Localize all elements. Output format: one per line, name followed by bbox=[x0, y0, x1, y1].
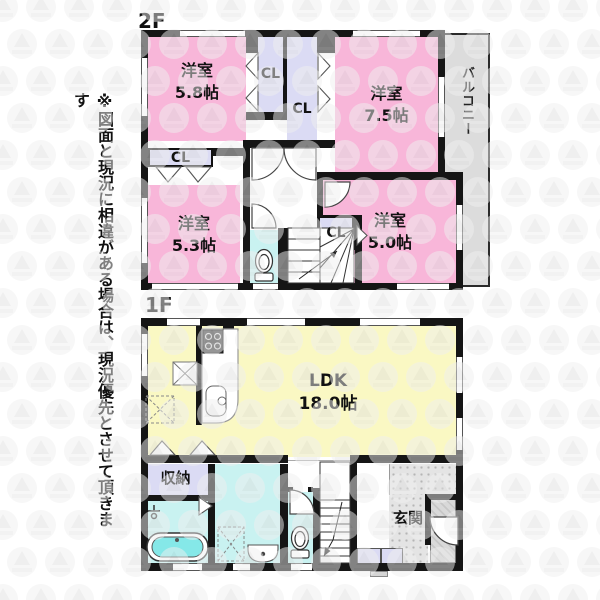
watermark-logo bbox=[178, 584, 208, 600]
watermark-logo-glyph bbox=[470, 477, 486, 491]
watermark-logo-text bbox=[88, 50, 108, 54]
watermark-logo bbox=[216, 288, 246, 318]
watermark-logo-glyph bbox=[90, 33, 106, 47]
watermark-logo bbox=[178, 0, 208, 22]
watermark-logo-glyph bbox=[508, 551, 524, 565]
watermark-logo-text bbox=[31, 457, 51, 461]
watermark-logo bbox=[292, 0, 322, 22]
watermark-logo-glyph bbox=[546, 551, 562, 565]
watermark-logo-glyph bbox=[33, 144, 49, 158]
watermark-logo bbox=[26, 362, 56, 392]
watermark-logo bbox=[64, 288, 94, 318]
watermark-logo-text bbox=[506, 346, 526, 350]
watermark-logo-glyph bbox=[470, 329, 486, 343]
watermark-logo-text bbox=[12, 272, 32, 276]
watermark-logo bbox=[330, 0, 360, 22]
watermark-logo bbox=[444, 288, 474, 318]
watermark-logo bbox=[482, 0, 512, 22]
watermark-logo-glyph bbox=[489, 70, 505, 84]
watermark-logo bbox=[577, 103, 600, 133]
watermark-logo bbox=[539, 29, 569, 59]
watermark-logo-glyph bbox=[546, 255, 562, 269]
watermark-logo bbox=[45, 29, 75, 59]
watermark-logo-glyph bbox=[546, 33, 562, 47]
watermark-logo bbox=[558, 436, 588, 466]
watermark-logo-text bbox=[0, 309, 13, 313]
wall bbox=[313, 488, 320, 563]
room-size: 5.0帖 bbox=[368, 233, 412, 252]
watermark-logo-text bbox=[297, 309, 317, 313]
watermark-logo bbox=[7, 399, 37, 429]
watermark-logo-text bbox=[12, 568, 32, 572]
watermark-logo bbox=[254, 288, 284, 318]
watermark-logo bbox=[64, 0, 94, 22]
bedroom-5-8-label: 洋室 5.8帖 bbox=[148, 60, 246, 103]
watermark-logo bbox=[45, 251, 75, 281]
watermark-logo-glyph bbox=[33, 440, 49, 454]
room-name: 洋室 bbox=[374, 211, 406, 230]
watermark-logo-glyph bbox=[489, 514, 505, 528]
watermark-logo bbox=[596, 66, 600, 96]
watermark-logo bbox=[577, 547, 600, 577]
watermark-logo-glyph bbox=[337, 588, 353, 600]
window bbox=[167, 318, 200, 326]
watermark-logo bbox=[539, 473, 569, 503]
watermark-logo bbox=[558, 288, 588, 318]
watermark-logo-glyph bbox=[527, 588, 543, 600]
window bbox=[456, 205, 463, 250]
watermark-logo-glyph bbox=[52, 107, 68, 121]
window bbox=[233, 563, 250, 571]
watermark-logo-text bbox=[50, 346, 70, 350]
watermark-logo-text bbox=[506, 494, 526, 498]
watermark-logo-glyph bbox=[71, 588, 87, 600]
watermark-logo-text bbox=[31, 235, 51, 239]
watermark-logo-glyph bbox=[451, 0, 467, 10]
watermark-logo-glyph bbox=[508, 477, 524, 491]
watermark-logo bbox=[558, 140, 588, 170]
watermark-logo bbox=[7, 103, 37, 133]
watermark-logo-glyph bbox=[451, 292, 467, 306]
watermark-logo-text bbox=[544, 420, 564, 424]
watermark-logo-text bbox=[487, 531, 507, 535]
watermark-logo bbox=[539, 251, 569, 281]
watermark-logo-glyph bbox=[261, 292, 277, 306]
wall bbox=[213, 148, 243, 156]
watermark-logo-glyph bbox=[14, 477, 30, 491]
watermark-logo bbox=[444, 584, 474, 600]
watermark-logo bbox=[577, 473, 600, 503]
watermark-logo-glyph bbox=[489, 588, 505, 600]
watermark-logo-text bbox=[525, 235, 545, 239]
watermark-logo-glyph bbox=[584, 329, 600, 343]
watermark-logo-text bbox=[582, 272, 600, 276]
watermark-logo-text bbox=[544, 568, 564, 572]
watermark-logo-text bbox=[506, 198, 526, 202]
bedroom-5-3-label: 洋室 5.3帖 bbox=[148, 213, 240, 256]
watermark-logo-text bbox=[50, 420, 70, 424]
watermark-logo-text bbox=[506, 50, 526, 54]
watermark-logo bbox=[7, 251, 37, 281]
closet-right-label: CL bbox=[285, 102, 319, 116]
watermark-logo-text bbox=[0, 383, 13, 387]
watermark-logo-text bbox=[544, 494, 564, 498]
watermark-logo bbox=[577, 251, 600, 281]
watermark-logo bbox=[64, 510, 94, 540]
watermark-logo bbox=[0, 584, 18, 600]
entrance-porch bbox=[430, 497, 456, 563]
watermark-logo-glyph bbox=[565, 70, 581, 84]
closet-5-0-label: CL bbox=[317, 226, 355, 240]
watermark-logo-text bbox=[506, 420, 526, 424]
watermark-logo-glyph bbox=[508, 33, 524, 47]
watermark-logo bbox=[520, 0, 550, 22]
watermark-logo-text bbox=[0, 457, 13, 461]
watermark-logo-text bbox=[582, 494, 600, 498]
watermark-logo-text bbox=[31, 383, 51, 387]
toilet-2f-room bbox=[250, 230, 278, 283]
watermark-logo-text bbox=[525, 87, 545, 91]
watermark-logo bbox=[178, 288, 208, 318]
watermark-logo bbox=[520, 214, 550, 244]
watermark-logo bbox=[520, 584, 550, 600]
watermark-logo-text bbox=[582, 568, 600, 572]
watermark-logo-glyph bbox=[0, 70, 11, 84]
watermark-logo-glyph bbox=[223, 292, 239, 306]
wall bbox=[278, 228, 288, 285]
watermark-logo-text bbox=[487, 457, 507, 461]
window bbox=[173, 563, 202, 571]
watermark-logo-text bbox=[335, 309, 355, 313]
watermark-logo bbox=[45, 547, 75, 577]
wall bbox=[223, 326, 234, 352]
watermark-logo bbox=[501, 325, 531, 355]
watermark-logo-text bbox=[31, 13, 51, 17]
window bbox=[456, 357, 463, 393]
watermark-logo-text bbox=[563, 235, 583, 239]
watermark-logo-glyph bbox=[52, 33, 68, 47]
wall bbox=[317, 172, 463, 180]
watermark-logo-glyph bbox=[527, 440, 543, 454]
kitchen-wall bbox=[196, 326, 202, 425]
watermark-logo-glyph bbox=[527, 218, 543, 232]
watermark-logo bbox=[596, 584, 600, 600]
watermark-logo-glyph bbox=[527, 366, 543, 380]
entrance-step bbox=[370, 571, 388, 577]
watermark-logo-text bbox=[544, 272, 564, 276]
watermark-logo-glyph bbox=[584, 403, 600, 417]
room-size: 5.3帖 bbox=[172, 236, 216, 255]
shoe-cabinet bbox=[381, 548, 403, 564]
bathroom bbox=[143, 501, 212, 563]
watermark-logo-text bbox=[525, 309, 545, 313]
watermark-logo-text bbox=[50, 50, 70, 54]
watermark-logo bbox=[558, 214, 588, 244]
watermark-logo-glyph bbox=[185, 292, 201, 306]
floor-2f-label: 2F bbox=[138, 9, 166, 33]
watermark-logo-text bbox=[259, 13, 279, 17]
watermark-logo-text bbox=[12, 494, 32, 498]
watermark-logo-glyph bbox=[508, 403, 524, 417]
watermark-logo bbox=[0, 66, 18, 96]
watermark-logo bbox=[0, 436, 18, 466]
watermark-logo-glyph bbox=[413, 588, 429, 600]
watermark-logo-glyph bbox=[71, 292, 87, 306]
watermark-logo-glyph bbox=[147, 588, 163, 600]
watermark-logo-text bbox=[582, 420, 600, 424]
watermark-logo-text bbox=[411, 309, 431, 313]
watermark-logo-glyph bbox=[14, 33, 30, 47]
watermark-logo bbox=[102, 0, 132, 22]
watermark-logo bbox=[26, 288, 56, 318]
watermark-logo-text bbox=[12, 50, 32, 54]
watermark-logo-glyph bbox=[508, 107, 524, 121]
watermark-logo bbox=[26, 0, 56, 22]
window bbox=[141, 58, 148, 116]
watermark-logo-text bbox=[525, 161, 545, 165]
watermark-logo-text bbox=[582, 198, 600, 202]
watermark-logo-text bbox=[468, 494, 488, 498]
watermark-logo bbox=[520, 66, 550, 96]
watermark-logo-glyph bbox=[584, 107, 600, 121]
disclaimer-text: ※図面と現況に相違がある場合は、現況優先とさせて頂きます bbox=[92, 92, 116, 532]
watermark-logo-glyph bbox=[584, 181, 600, 195]
watermark-logo-text bbox=[50, 568, 70, 572]
watermark-logo-text bbox=[582, 124, 600, 128]
watermark-logo-glyph bbox=[0, 514, 11, 528]
wall bbox=[243, 148, 250, 283]
watermark-logo-glyph bbox=[223, 0, 239, 10]
watermark-logo-glyph bbox=[584, 255, 600, 269]
watermark-logo bbox=[7, 473, 37, 503]
watermark-logo-glyph bbox=[0, 218, 11, 232]
watermark-logo-text bbox=[487, 383, 507, 387]
watermark-logo-glyph bbox=[337, 292, 353, 306]
watermark-logo-text bbox=[69, 383, 89, 387]
watermark-logo bbox=[26, 436, 56, 466]
watermark-logo bbox=[596, 510, 600, 540]
watermark-logo bbox=[0, 214, 18, 244]
watermark-logo bbox=[26, 584, 56, 600]
watermark-logo-glyph bbox=[375, 0, 391, 10]
watermark-logo bbox=[216, 584, 246, 600]
watermark-logo bbox=[368, 0, 398, 22]
wall bbox=[317, 37, 335, 53]
watermark-logo bbox=[558, 584, 588, 600]
wall bbox=[141, 455, 288, 463]
watermark-logo bbox=[0, 0, 18, 22]
watermark-logo-text bbox=[563, 13, 583, 17]
watermark-logo bbox=[463, 547, 493, 577]
watermark-logo-text bbox=[107, 13, 127, 17]
watermark-logo-glyph bbox=[565, 144, 581, 158]
watermark-logo-glyph bbox=[14, 181, 30, 195]
watermark-logo-text bbox=[487, 87, 507, 91]
watermark-logo bbox=[596, 140, 600, 170]
watermark-logo bbox=[501, 399, 531, 429]
watermark-logo-text bbox=[468, 568, 488, 572]
watermark-logo-text bbox=[31, 309, 51, 313]
watermark-logo-glyph bbox=[14, 255, 30, 269]
watermark-logo-text bbox=[487, 309, 507, 313]
watermark-logo bbox=[45, 473, 75, 503]
watermark-logo-glyph bbox=[584, 33, 600, 47]
watermark-logo bbox=[501, 29, 531, 59]
watermark-logo-glyph bbox=[14, 329, 30, 343]
watermark-logo-glyph bbox=[299, 292, 315, 306]
watermark-logo bbox=[254, 584, 284, 600]
watermark-logo-glyph bbox=[546, 329, 562, 343]
watermark-logo bbox=[577, 325, 600, 355]
watermark-logo bbox=[368, 288, 398, 318]
watermark-logo bbox=[26, 510, 56, 540]
wall bbox=[143, 495, 215, 501]
watermark-logo-glyph bbox=[90, 551, 106, 565]
watermark-logo-text bbox=[0, 235, 13, 239]
watermark-logo-text bbox=[12, 346, 32, 350]
watermark-logo-text bbox=[525, 531, 545, 535]
watermark-logo-glyph bbox=[33, 366, 49, 380]
watermark-logo-text bbox=[297, 13, 317, 17]
watermark-logo-text bbox=[221, 309, 241, 313]
watermark-logo-text bbox=[31, 161, 51, 165]
watermark-logo bbox=[520, 362, 550, 392]
watermark-logo-glyph bbox=[337, 0, 353, 10]
watermark-logo-glyph bbox=[413, 0, 429, 10]
watermark-logo-glyph bbox=[565, 0, 581, 10]
watermark-logo-glyph bbox=[0, 588, 11, 600]
wall bbox=[246, 37, 258, 53]
watermark-logo-glyph bbox=[527, 0, 543, 10]
watermark-logo-glyph bbox=[489, 292, 505, 306]
watermark-logo-glyph bbox=[508, 255, 524, 269]
watermark-logo-glyph bbox=[33, 218, 49, 232]
room-name: LDK bbox=[309, 371, 347, 391]
wall bbox=[350, 455, 463, 463]
room-name: 洋室 bbox=[178, 214, 210, 233]
watermark-logo-text bbox=[107, 87, 127, 91]
watermark-logo-glyph bbox=[261, 588, 277, 600]
watermark-logo bbox=[482, 288, 512, 318]
watermark-logo bbox=[7, 177, 37, 207]
watermark-logo bbox=[520, 436, 550, 466]
watermark-logo-text bbox=[50, 124, 70, 128]
watermark-logo bbox=[596, 0, 600, 22]
closet-5-3-label: CL bbox=[148, 151, 213, 165]
watermark-logo-glyph bbox=[71, 144, 87, 158]
watermark-logo bbox=[330, 288, 360, 318]
watermark-logo bbox=[406, 584, 436, 600]
watermark-logo bbox=[596, 436, 600, 466]
wall bbox=[288, 487, 293, 492]
watermark-logo bbox=[501, 177, 531, 207]
watermark-logo bbox=[539, 103, 569, 133]
watermark-logo-glyph bbox=[33, 588, 49, 600]
watermark-logo bbox=[482, 362, 512, 392]
watermark-logo-text bbox=[544, 50, 564, 54]
watermark-logo-glyph bbox=[565, 440, 581, 454]
watermark-logo-text bbox=[50, 494, 70, 498]
watermark-logo-text bbox=[525, 457, 545, 461]
watermark-logo bbox=[0, 140, 18, 170]
watermark-logo-glyph bbox=[299, 588, 315, 600]
wall bbox=[246, 112, 287, 120]
watermark-logo bbox=[501, 473, 531, 503]
watermark-logo-text bbox=[487, 161, 507, 165]
watermark-logo-text bbox=[259, 309, 279, 313]
closet-right bbox=[287, 37, 317, 142]
watermark-logo-text bbox=[544, 198, 564, 202]
watermark-logo-text bbox=[582, 50, 600, 54]
room-name: 洋室 bbox=[181, 61, 213, 80]
watermark-logo-text bbox=[183, 309, 203, 313]
wall bbox=[280, 464, 288, 563]
watermark-logo bbox=[577, 177, 600, 207]
watermark-logo-glyph bbox=[565, 218, 581, 232]
watermark-logo bbox=[501, 547, 531, 577]
watermark-logo-glyph bbox=[52, 181, 68, 195]
watermark-logo-text bbox=[506, 272, 526, 276]
watermark-logo-glyph bbox=[565, 588, 581, 600]
watermark-logo-glyph bbox=[375, 588, 391, 600]
watermark-logo-glyph bbox=[33, 514, 49, 528]
watermark-logo bbox=[558, 362, 588, 392]
watermark-logo-text bbox=[544, 124, 564, 128]
ldk-opening-line bbox=[288, 460, 350, 461]
floorplan-image: 2F 1F 洋室 5.8帖 洋室 7.5帖 洋室 5.3帖 洋室 5.0帖 CL… bbox=[0, 0, 600, 600]
watermark-logo bbox=[406, 288, 436, 318]
watermark-logo bbox=[45, 399, 75, 429]
watermark-logo-text bbox=[69, 457, 89, 461]
watermark-logo-glyph bbox=[508, 181, 524, 195]
watermark-logo bbox=[0, 288, 18, 318]
watermark-logo-text bbox=[506, 568, 526, 572]
watermark-logo-glyph bbox=[52, 255, 68, 269]
toilet-1f-room bbox=[288, 492, 313, 563]
watermark-logo bbox=[558, 510, 588, 540]
watermark-logo-text bbox=[12, 420, 32, 424]
watermark-logo-text bbox=[563, 161, 583, 165]
watermark-logo-glyph bbox=[489, 366, 505, 380]
watermark-logo-text bbox=[221, 13, 241, 17]
watermark-logo-text bbox=[0, 13, 13, 17]
watermark-logo-glyph bbox=[489, 0, 505, 10]
watermark-logo-glyph bbox=[565, 366, 581, 380]
watermark-logo-glyph bbox=[223, 588, 239, 600]
watermark-logo-glyph bbox=[451, 588, 467, 600]
watermark-logo bbox=[482, 436, 512, 466]
watermark-logo bbox=[463, 473, 493, 503]
watermark-logo bbox=[292, 584, 322, 600]
watermark-logo-glyph bbox=[0, 144, 11, 158]
watermark-logo bbox=[596, 214, 600, 244]
bedroom-7-5-label: 洋室 7.5帖 bbox=[335, 83, 438, 126]
window bbox=[141, 198, 148, 263]
watermark-logo-glyph bbox=[0, 366, 11, 380]
watermark-logo-glyph bbox=[470, 403, 486, 417]
watermark-logo bbox=[482, 584, 512, 600]
watermark-logo-text bbox=[582, 346, 600, 350]
watermark-logo-text bbox=[563, 383, 583, 387]
watermark-logo-glyph bbox=[470, 551, 486, 565]
watermark-logo bbox=[26, 214, 56, 244]
watermark-logo bbox=[64, 140, 94, 170]
watermark-logo bbox=[368, 584, 398, 600]
watermark-logo bbox=[406, 0, 436, 22]
watermark-logo-glyph bbox=[33, 292, 49, 306]
watermark-logo bbox=[596, 362, 600, 392]
watermark-logo-text bbox=[0, 531, 13, 535]
